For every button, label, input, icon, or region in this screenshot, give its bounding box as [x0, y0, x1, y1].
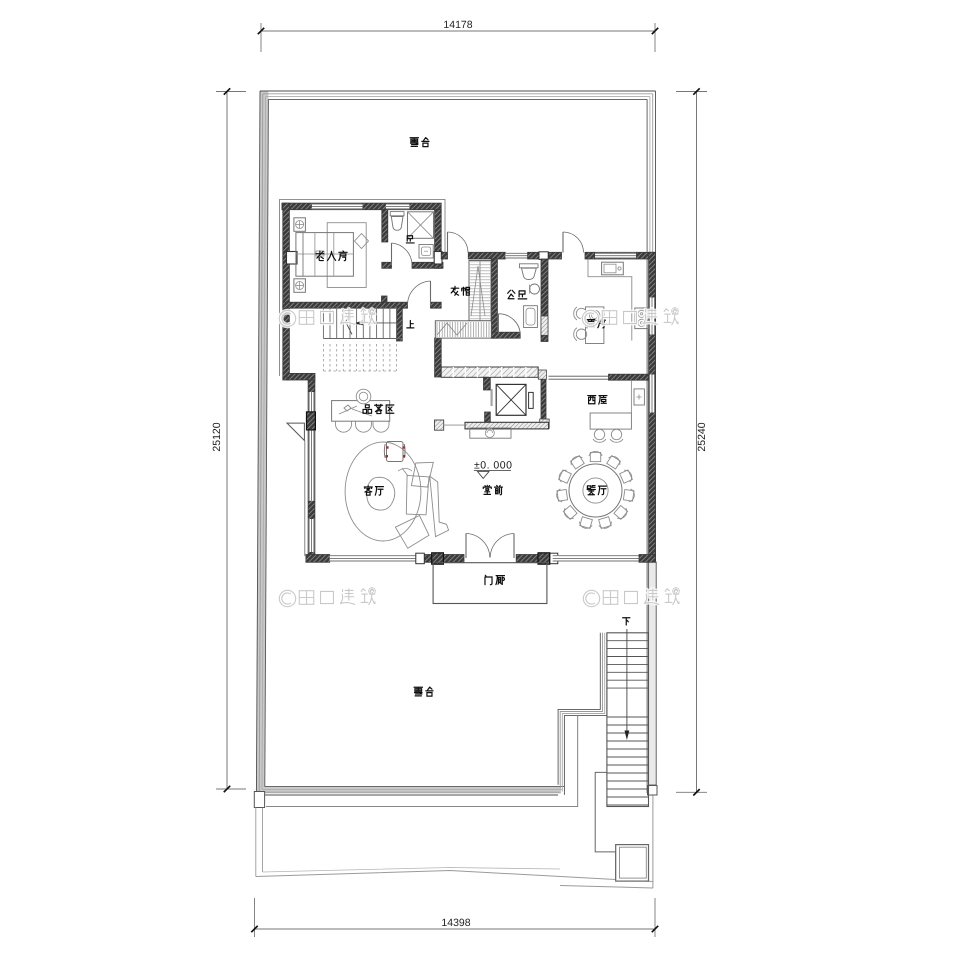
- svg-text:R: R: [673, 310, 677, 316]
- svg-text:R: R: [370, 590, 374, 596]
- svg-text:25240: 25240: [696, 422, 708, 451]
- svg-text:R: R: [674, 590, 678, 596]
- svg-text:R: R: [370, 310, 374, 316]
- svg-text:25120: 25120: [211, 422, 223, 451]
- svg-text:±0. 000: ±0. 000: [474, 460, 512, 472]
- svg-text:14178: 14178: [443, 19, 472, 31]
- svg-text:14398: 14398: [441, 917, 470, 929]
